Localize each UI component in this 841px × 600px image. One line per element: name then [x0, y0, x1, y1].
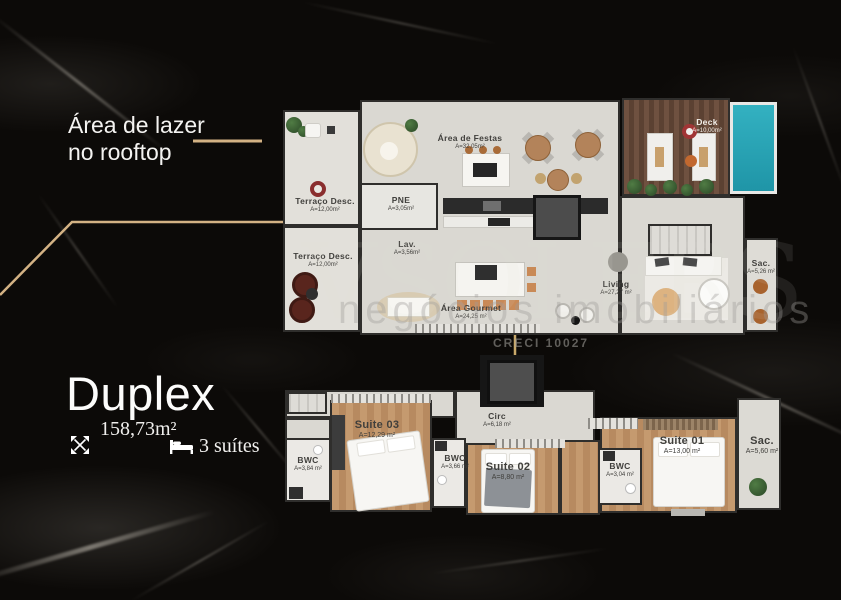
corridor [560, 440, 600, 515]
kitchen-counter-dark [443, 198, 608, 214]
staircase [648, 224, 712, 256]
label-bwc-3: BWC A=3,04 m² [606, 461, 634, 478]
side-table [306, 288, 318, 300]
label-suite-02: Suite 02 A=8,80 m² [486, 461, 531, 481]
pouf [608, 252, 628, 272]
toilet [625, 483, 636, 494]
terrace-table [327, 126, 335, 134]
round-sofa-table [380, 142, 398, 160]
elevator-shaft [487, 360, 537, 404]
round-tan-rug [652, 288, 680, 316]
round-table [547, 169, 569, 191]
bed-icon [169, 438, 194, 460]
railing-hatch [331, 394, 431, 403]
towel [699, 147, 708, 167]
swimming-pool [730, 102, 777, 194]
oval-dining-table [387, 297, 430, 317]
side-table [571, 316, 580, 325]
lounge-chair [555, 303, 571, 319]
rattan-chair [753, 309, 768, 324]
bar-cooktop [473, 163, 497, 177]
plant [749, 478, 767, 496]
cooktop-appliance [483, 201, 501, 211]
round-red-rug [310, 181, 326, 197]
label-bwc-1: BWC A=3,84 m² [294, 455, 322, 472]
railing-hatch [495, 439, 565, 448]
dimensions-icon [70, 435, 90, 460]
plant [681, 184, 693, 196]
railing-hatch [588, 418, 638, 429]
label-suite-03: Suite 03 A=12,29 m² [355, 419, 400, 439]
deck-stool [685, 155, 697, 167]
chair [527, 267, 536, 276]
toilet [313, 445, 323, 455]
rooftop-floor-plan: Terraço Desc. A=12,00m² Terraço Desc. A=… [283, 95, 783, 337]
plant [405, 119, 418, 132]
gold-polyline [0, 222, 283, 295]
sofa-cushion [683, 257, 698, 266]
towel [655, 147, 664, 167]
plant [627, 179, 642, 194]
terrace-chair [305, 123, 321, 138]
plant [645, 184, 657, 196]
chair [527, 283, 536, 292]
label-terraco-1: Terraço Desc. A=12,00m² [295, 196, 355, 213]
pouf [289, 297, 315, 323]
balcony-railing [415, 324, 540, 333]
marketing-poster: Área de lazer no rooftop Duplex 158,73m²… [0, 0, 841, 600]
wall-divider [283, 224, 360, 228]
lounge-chair [579, 307, 595, 323]
suites-floor-plan: Circ A=6,18 m² BWC A=3,84 m² Suite 03 A=… [283, 345, 783, 520]
hall-filler [285, 418, 331, 440]
shower [435, 441, 447, 451]
label-pne: PNE A=3,05m² [388, 195, 414, 212]
wardrobe [643, 419, 718, 430]
label-gourmet: Área Gourmet A=24,25 m² [441, 303, 501, 320]
label-circ: Circ A=6,18 m² [483, 411, 511, 428]
bed-bench [671, 509, 705, 516]
label-lav: Lav. A=3,56m² [394, 239, 420, 256]
plant [663, 180, 677, 194]
elevator-shaft [533, 195, 581, 240]
island-cooktop [488, 218, 510, 226]
label-deck: Deck A=10,00m² [692, 117, 722, 134]
label-terraco-2: Terraço Desc. A=12,00m² [293, 251, 353, 268]
label-suite-01: Suite 01 A=13,00 m² [660, 435, 705, 455]
chair [535, 173, 546, 184]
shower [289, 487, 303, 499]
toilet [437, 475, 447, 485]
chair [571, 173, 582, 184]
label-sacada-lower: Sac. A=5,60 m² [746, 435, 779, 455]
round-coffee-table [698, 278, 730, 310]
rattan-chair [753, 279, 768, 294]
chair [509, 300, 519, 310]
label-sacada-upper: Sac. A=5,26 m² [747, 258, 775, 275]
label-bwc-2: BWC A=3,66 m² [441, 453, 469, 470]
wardrobe [332, 415, 345, 470]
staircase [287, 392, 327, 414]
shower [603, 451, 615, 461]
plant [699, 179, 714, 194]
label-festas: Área de Festas A=32,05m² [438, 133, 503, 150]
label-living: Living A=27,27 m² [600, 279, 631, 296]
gourmet-grill [475, 265, 497, 280]
